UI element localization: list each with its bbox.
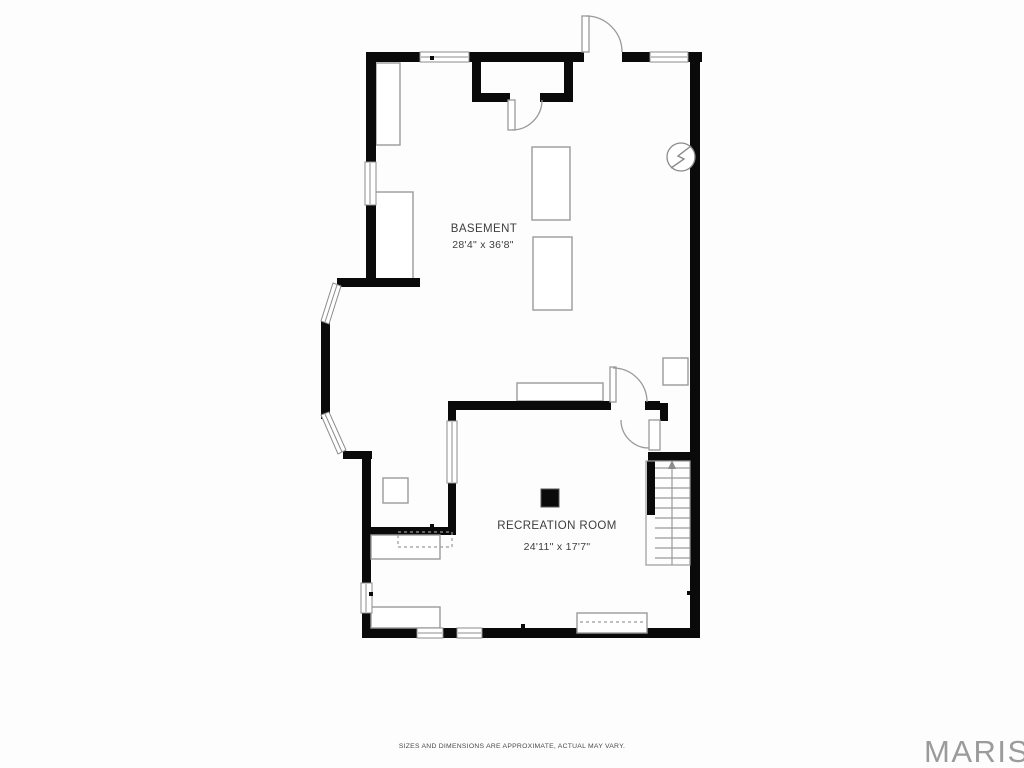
support-post bbox=[541, 489, 559, 507]
basement-label: BASEMENT bbox=[451, 223, 517, 235]
maris-logo: MARIS bbox=[924, 734, 1024, 768]
door-bump-leaf bbox=[508, 100, 515, 130]
door-entry-top-arc bbox=[586, 16, 622, 52]
electrical-panel-icon bbox=[667, 143, 695, 171]
wall-bump-bottom-b bbox=[540, 93, 573, 102]
wall-nook bbox=[371, 527, 455, 535]
tick-4 bbox=[369, 592, 373, 596]
wall-bottom bbox=[362, 628, 700, 638]
wall-stair-left bbox=[647, 461, 655, 515]
wall-stair-stub bbox=[660, 403, 668, 421]
tick-7 bbox=[687, 591, 691, 595]
door-rec-arc bbox=[613, 368, 647, 402]
wall-rec-top-b bbox=[645, 401, 660, 410]
door-entry-top-leaf bbox=[582, 16, 589, 52]
shelf-left-lower bbox=[375, 192, 413, 282]
wall-right bbox=[690, 52, 700, 638]
wall-stair-top bbox=[648, 452, 690, 461]
tick-6 bbox=[690, 361, 694, 365]
chimney-chase bbox=[663, 358, 688, 385]
tick-2 bbox=[523, 404, 527, 408]
tick-3 bbox=[430, 524, 434, 528]
disclaimer-text: SIZES AND DIMENSIONS ARE APPROXIMATE, AC… bbox=[399, 743, 625, 750]
window-bay-lower-mullion bbox=[325, 414, 342, 452]
floor-plan-svg: BASEMENT 28'4" x 36'8" RECREATION ROOM 2… bbox=[0, 0, 1024, 768]
fixture-square bbox=[383, 478, 408, 503]
shelf-left-upper bbox=[376, 63, 400, 145]
table-upper bbox=[532, 147, 570, 220]
door-stair-arc bbox=[621, 420, 649, 448]
table-lower bbox=[533, 237, 572, 310]
wall-bay-left bbox=[321, 320, 330, 419]
workbench-lower bbox=[371, 607, 440, 628]
door-bump-arc bbox=[512, 100, 542, 130]
tick-1 bbox=[430, 56, 434, 60]
wall-bay-top bbox=[337, 278, 420, 287]
wall-bump-bottom-a bbox=[472, 93, 510, 102]
wall-top-right-a bbox=[622, 52, 650, 62]
door-stair-leaf bbox=[649, 420, 660, 450]
recreation-room-label: RECREATION ROOM bbox=[497, 520, 617, 532]
basement-dimensions: 28'4" x 36'8" bbox=[452, 239, 514, 251]
door-rec-leaf bbox=[610, 367, 616, 402]
floorplan-image: BASEMENT 28'4" x 36'8" RECREATION ROOM 2… bbox=[0, 0, 1024, 768]
cabinet-long bbox=[517, 383, 603, 401]
recreation-room-dimensions: 24'11" x 17'7" bbox=[524, 541, 591, 553]
window-seat bbox=[577, 613, 647, 633]
wall-rec-top-a bbox=[448, 401, 611, 410]
tick-5 bbox=[521, 624, 525, 628]
